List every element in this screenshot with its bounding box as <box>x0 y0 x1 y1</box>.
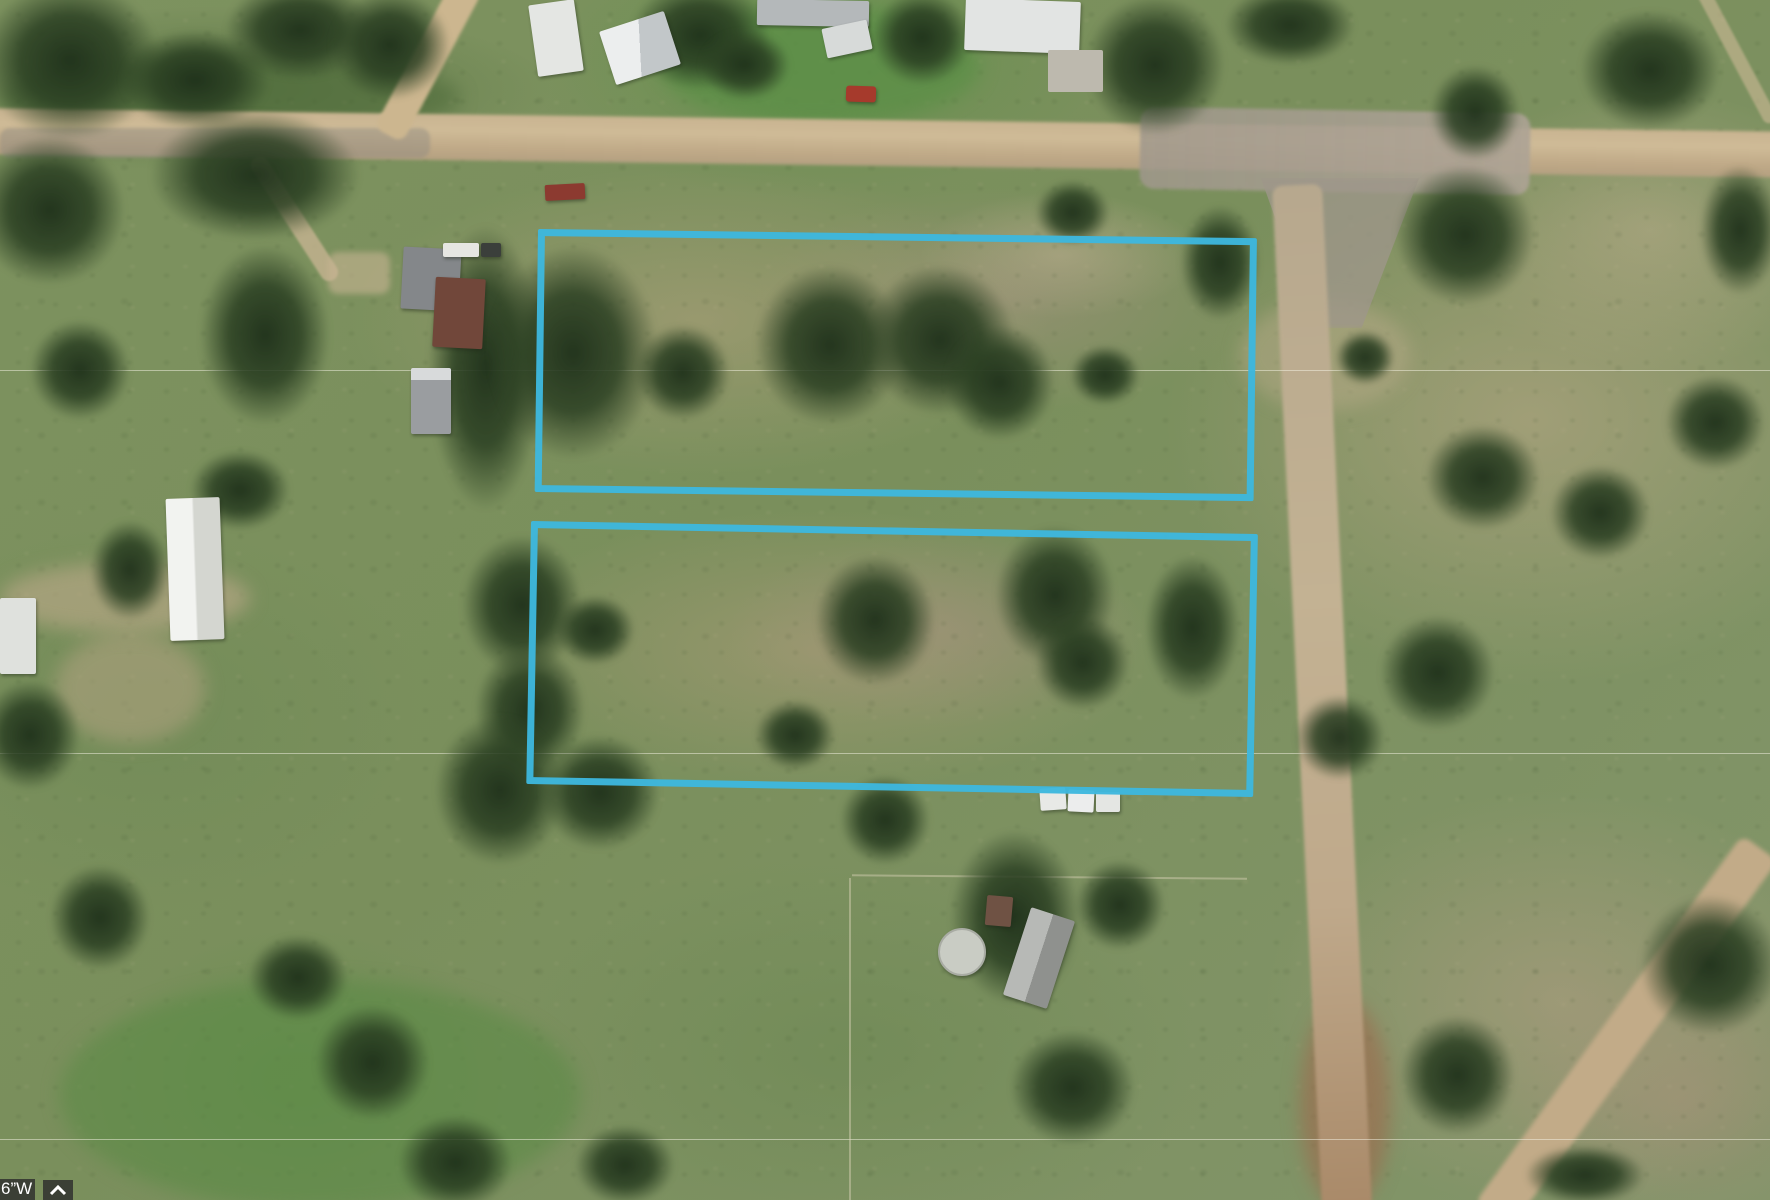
building-top-right <box>964 0 1081 54</box>
tree-cluster <box>1335 330 1395 385</box>
building-left-edge <box>0 598 36 674</box>
tree-cluster <box>150 110 360 240</box>
tree-cluster <box>1580 10 1720 130</box>
carport-pad <box>1048 50 1103 92</box>
tree-cluster <box>1010 1030 1135 1145</box>
tree-cluster <box>90 520 170 620</box>
water-tank <box>938 928 986 976</box>
chevron-up-icon <box>48 1184 68 1196</box>
tree-cluster <box>1380 615 1495 730</box>
tree-cluster <box>248 935 348 1020</box>
tree-cluster <box>1665 375 1765 470</box>
shed-gray <box>411 368 451 434</box>
tree-cluster <box>315 1005 430 1120</box>
parcel-outline-south <box>526 521 1258 797</box>
vehicle-dark-small <box>481 243 501 257</box>
tree-cluster <box>1525 1145 1645 1200</box>
satellite-map-viewport[interactable]: 6”W <box>0 0 1770 1200</box>
tree-cluster <box>1430 65 1520 160</box>
tree-cluster <box>575 1125 675 1200</box>
tree-cluster <box>1395 165 1535 305</box>
tree-cluster <box>1640 895 1770 1035</box>
tree-cluster <box>398 1115 513 1200</box>
red-vehicle <box>846 85 877 102</box>
tree-cluster <box>1085 0 1225 135</box>
tree-cluster <box>700 30 790 100</box>
vehicle-white-small <box>443 243 479 257</box>
trailer-white <box>1096 792 1120 812</box>
tree-cluster <box>50 865 150 970</box>
tree-cluster <box>30 320 130 420</box>
tree-cluster <box>1550 465 1650 560</box>
tree-cluster <box>1400 1015 1515 1135</box>
tree-cluster <box>1425 425 1540 530</box>
driveway-pad <box>328 252 390 294</box>
tree-cluster <box>1295 695 1385 780</box>
structure-brown-small <box>985 895 1014 927</box>
structure-red-small <box>545 183 586 201</box>
coordinate-text: 6”W <box>1 1179 32 1199</box>
tree-cluster <box>1075 860 1165 950</box>
coordinate-readout: 6”W <box>0 1179 35 1200</box>
house-brown-roof <box>432 277 486 350</box>
collapse-button[interactable] <box>43 1180 73 1200</box>
fence-line <box>849 878 851 1200</box>
barn-white <box>166 497 225 641</box>
imagery-seam-line <box>0 1139 1770 1140</box>
tree-cluster <box>1700 165 1770 295</box>
building-white-house <box>528 0 584 77</box>
parcel-outline-north <box>535 229 1257 501</box>
tree-cluster <box>200 245 330 425</box>
